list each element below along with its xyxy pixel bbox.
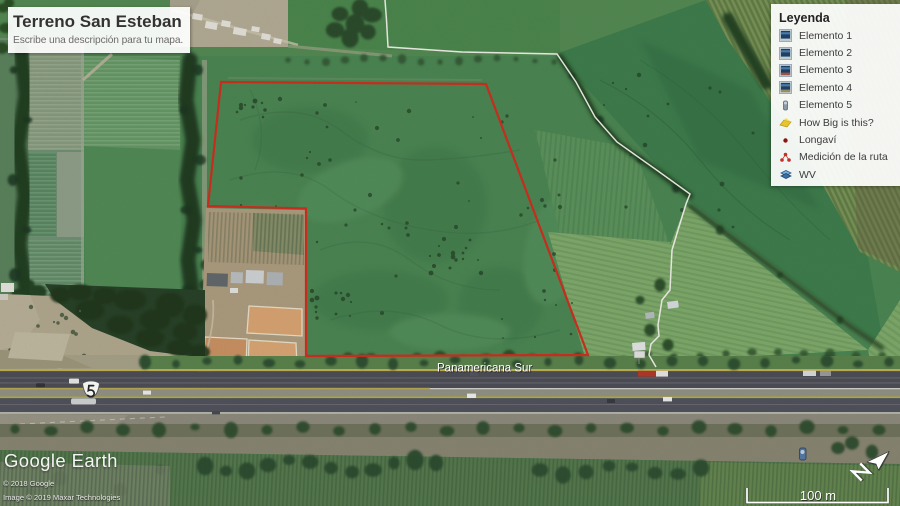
svg-text:100 m: 100 m xyxy=(800,488,836,503)
svg-text:Panamericana Sur: Panamericana Sur xyxy=(437,363,532,375)
